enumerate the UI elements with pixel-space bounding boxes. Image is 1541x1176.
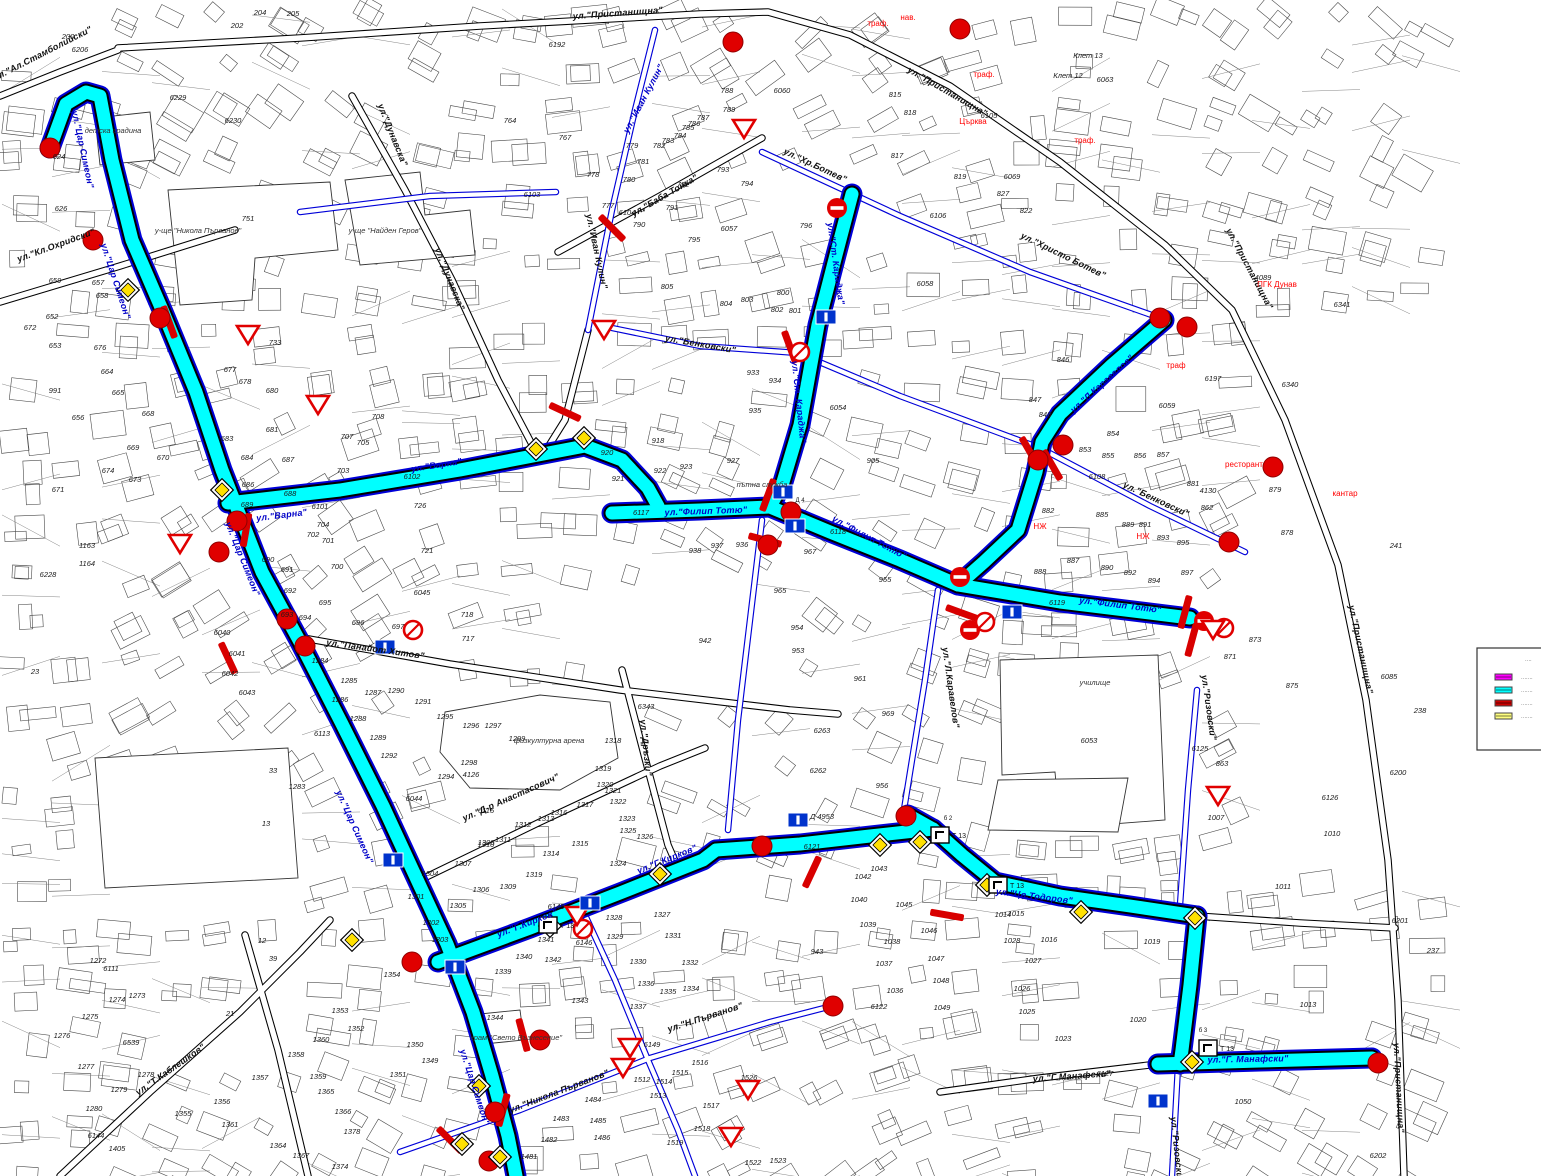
parcel-number-label: 6539 bbox=[123, 1038, 141, 1047]
parcel-number-label: 889 bbox=[1122, 520, 1135, 529]
parcel-number-label: 681 bbox=[266, 425, 279, 434]
red-annotation-label: траф. bbox=[1074, 136, 1095, 145]
parcel-number-label: 1311 bbox=[495, 835, 511, 844]
no-stopping-sign[interactable] bbox=[404, 621, 422, 639]
parcel-number-label: 1275 bbox=[82, 1012, 100, 1021]
parcel-number-label: 1010 bbox=[1324, 829, 1342, 838]
parcel-number-label: 1515 bbox=[672, 1068, 690, 1077]
parcel-number-label: 1319 bbox=[595, 764, 613, 773]
parcel-number-label: 718 bbox=[461, 610, 474, 619]
parcel-number-label: 1323 bbox=[619, 814, 637, 823]
parcel-number-label: 717 bbox=[462, 634, 475, 643]
parcel-number-label: 778 bbox=[587, 170, 600, 179]
note-label: б 2 bbox=[944, 816, 953, 822]
parcel-number-label: 853 bbox=[1079, 445, 1092, 454]
parcel-number-label: 965 bbox=[774, 586, 787, 595]
parcel-number-label: 1518 bbox=[694, 1124, 712, 1133]
parcel-number-label: 1337 bbox=[630, 1002, 648, 1011]
parcel-number-label: 671 bbox=[52, 485, 65, 494]
parcel-number-label: 1287 bbox=[365, 688, 383, 697]
parcel-number-label: 890 bbox=[1101, 563, 1114, 572]
parcel-number-label: 822 bbox=[1020, 206, 1033, 215]
parcel-number-label: 847 bbox=[1029, 395, 1042, 404]
parcel-number-label: 1049 bbox=[934, 1003, 952, 1012]
parcel-number-label: 6054 bbox=[830, 403, 847, 412]
parcel-number-label: 1288 bbox=[350, 714, 368, 723]
parcel-number-label: 784 bbox=[674, 131, 687, 140]
parcel-number-label: 956 bbox=[876, 781, 889, 790]
red-annotation-label: Църква bbox=[959, 117, 987, 126]
traffic-dot-marker[interactable] bbox=[1028, 450, 1048, 470]
parcel-number-label: 658 bbox=[96, 291, 109, 300]
parcel-number-label: 672 bbox=[24, 323, 37, 332]
parcel-number-label: 1310 bbox=[478, 840, 496, 849]
parcel-number-label: 678 bbox=[239, 377, 252, 386]
parcel-number-label: 6200 bbox=[1390, 768, 1408, 777]
traffic-dot-marker[interactable] bbox=[1177, 317, 1197, 337]
info-sign-blue[interactable] bbox=[816, 310, 836, 324]
parcel-number-label: 688 bbox=[284, 489, 297, 498]
parcel-number-label: 1523 bbox=[770, 1156, 788, 1165]
traffic-dot-marker[interactable] bbox=[950, 19, 970, 39]
red-annotation-label: траф bbox=[1166, 361, 1186, 370]
parcel-number-label: 624 bbox=[53, 152, 66, 161]
parcel-number-label: 1025 bbox=[1019, 1007, 1037, 1016]
parcel-number-label: 1302 bbox=[423, 918, 441, 927]
parcel-number-label: 652 bbox=[46, 312, 59, 321]
parcel-number-label: 922 bbox=[654, 466, 667, 475]
parcel-number-label: 1328 bbox=[606, 913, 624, 922]
parcel-number-label: 6060 bbox=[774, 86, 792, 95]
traffic-dot-marker[interactable] bbox=[1053, 435, 1073, 455]
parcel-number-label: 1015 bbox=[1008, 909, 1026, 918]
traffic-dot-marker[interactable] bbox=[723, 32, 743, 52]
parcel-number-label: 1327 bbox=[654, 910, 672, 919]
parcel-number-label: 1324 bbox=[610, 859, 627, 868]
parcel-number-label: 665 bbox=[112, 388, 125, 397]
parcel-number-label: 4130 bbox=[1200, 486, 1218, 495]
parcel-number-label: 6262 bbox=[810, 766, 828, 775]
parcel-number-label: 6149 bbox=[644, 1040, 662, 1049]
parcel-number-label: 687 bbox=[282, 455, 295, 464]
red-annotation-label: НЖ bbox=[1033, 522, 1047, 531]
parcel-number-label: 1277 bbox=[78, 1062, 96, 1071]
parcel-number-label: 1522 bbox=[745, 1158, 763, 1167]
parcel-number-label: 1364 bbox=[270, 1141, 287, 1150]
parcel-number-label: 6121 bbox=[804, 842, 821, 851]
parcel-number-label: 1334 bbox=[683, 984, 700, 993]
parcel-number-label: 815 bbox=[889, 90, 902, 99]
parcel-number-label: 6144 bbox=[88, 1131, 105, 1140]
parcel-number-label: 879 bbox=[1269, 485, 1282, 494]
parcel-number-label: 701 bbox=[322, 536, 335, 545]
parcel-number-label: 888 bbox=[1034, 567, 1047, 576]
parcel-number-label: 938 bbox=[689, 546, 702, 555]
parcel-number-label: 1361 bbox=[222, 1120, 239, 1129]
parcel-number-label: 969 bbox=[882, 709, 895, 718]
red-annotation-label: траф. bbox=[867, 19, 888, 28]
parcel-number-label: 1378 bbox=[344, 1127, 362, 1136]
parcel-number-label: 991 bbox=[49, 386, 62, 395]
parcel-number-label: 767 bbox=[559, 133, 572, 142]
parcel-number-label: 1326 bbox=[637, 832, 655, 841]
place-label: у-ще "Найден Геров" bbox=[348, 226, 422, 235]
parcel-number-label: 863 bbox=[1216, 759, 1229, 768]
parcel-number-label: 6040 bbox=[214, 628, 232, 637]
parcel-number-label: 855 bbox=[1102, 451, 1115, 460]
parcel-number-label: 894 bbox=[1148, 576, 1161, 585]
parcel-number-label: 796 bbox=[800, 221, 813, 230]
parcel-number-label: 6063 bbox=[1097, 75, 1115, 84]
parcel-number-label: 1482 bbox=[541, 1135, 559, 1144]
parcel-number-label: 1481 bbox=[521, 1152, 538, 1161]
parcel-number-label: 6053 bbox=[1081, 736, 1099, 745]
parcel-number-label: 1358 bbox=[288, 1050, 306, 1059]
sign-box-label: Т 13 bbox=[560, 923, 574, 930]
parcel-number-label: 846 bbox=[1057, 355, 1070, 364]
parcel-number-label: 1325 bbox=[620, 826, 638, 835]
legend-header: ···· bbox=[1525, 658, 1532, 664]
legend-label: ······· bbox=[1521, 676, 1533, 682]
parcel-number-label: 677 bbox=[224, 365, 237, 374]
traffic-dot-marker[interactable] bbox=[402, 952, 422, 972]
parcel-number-label: 1354 bbox=[384, 970, 401, 979]
city-map-svg[interactable]: Т 13Т 13Т 13Т 13200202204205620662306229… bbox=[0, 0, 1541, 1176]
parcel-number-label: 933 bbox=[747, 368, 760, 377]
parcel-number-label: 862 bbox=[1201, 503, 1214, 512]
parcel-number-label: 1343 bbox=[572, 996, 590, 1005]
parcel-number-label: 1011 bbox=[1275, 882, 1291, 891]
no-entry-sign[interactable] bbox=[827, 198, 847, 218]
parcel-number-label: 854 bbox=[1107, 429, 1120, 438]
parcel-number-label: 683 bbox=[221, 434, 234, 443]
parcel-number-label: 6069 bbox=[1004, 172, 1022, 181]
parcel-number-label: 669 bbox=[127, 443, 140, 452]
note-label: б 3 bbox=[1199, 1028, 1208, 1034]
place-label: училище bbox=[1079, 678, 1111, 687]
parcel-number-label: 21 bbox=[225, 1009, 234, 1018]
parcel-number-label: 819 bbox=[954, 172, 967, 181]
info-sign-blue[interactable] bbox=[580, 896, 600, 910]
parcel-number-label: 1276 bbox=[54, 1031, 72, 1040]
parcel-number-label: 1303 bbox=[432, 935, 450, 944]
parcel-number-label: 1285 bbox=[341, 676, 359, 685]
parcel-number-label: 6057 bbox=[721, 224, 739, 233]
parcel-number-label: 1516 bbox=[692, 1058, 710, 1067]
parcel-number-label: 787 bbox=[697, 113, 710, 122]
info-sign-blue[interactable] bbox=[785, 519, 805, 533]
parcel-number-label: 6126 bbox=[1322, 793, 1340, 802]
parcel-number-label: 695 bbox=[319, 598, 332, 607]
parcel-number-label: 1042 bbox=[855, 872, 873, 881]
parcel-number-label: 13 bbox=[262, 819, 271, 828]
parcel-number-label: 1486 bbox=[594, 1133, 612, 1142]
parcel-number-label: 943 bbox=[811, 947, 824, 956]
traffic-dot-marker[interactable] bbox=[1150, 308, 1170, 328]
parcel-number-label: 1294 bbox=[438, 772, 455, 781]
parcel-number-label: 700 bbox=[331, 562, 344, 571]
parcel-number-label: 1297 bbox=[485, 721, 503, 730]
parcel-number-label: 6340 bbox=[1282, 380, 1300, 389]
parcel-number-label: 923 bbox=[680, 462, 693, 471]
parcel-number-label: 789 bbox=[723, 105, 736, 114]
parcel-number-label: 1356 bbox=[214, 1097, 232, 1106]
parcel-number-label: 6058 bbox=[917, 279, 935, 288]
parcel-number-label: 1519 bbox=[667, 1138, 685, 1147]
parcel-number-label: 6085 bbox=[1381, 672, 1399, 681]
traffic-dot-marker[interactable] bbox=[209, 542, 229, 562]
parcel-number-label: 33 bbox=[269, 766, 278, 775]
parcel-number-label: 656 bbox=[72, 413, 85, 422]
parcel-number-label: 1309 bbox=[500, 882, 518, 891]
parcel-number-label: 751 bbox=[242, 214, 255, 223]
info-sign-blue[interactable] bbox=[445, 960, 465, 974]
parcel-number-label: 803 bbox=[741, 295, 754, 304]
parcel-number-label: 696 bbox=[352, 618, 365, 627]
parcel-number-label: 6206 bbox=[72, 45, 90, 54]
block-outline bbox=[988, 778, 1128, 832]
parcel-number-label: 1289 bbox=[370, 733, 388, 742]
parcel-number-label: 659 bbox=[49, 276, 62, 285]
parcel-number-label: 871 bbox=[1224, 652, 1237, 661]
parcel-number-label: 707 bbox=[341, 432, 354, 441]
parcel-number-label: 934 bbox=[769, 376, 782, 385]
parcel-number-label: 1312 bbox=[515, 820, 533, 829]
parcel-number-label: 781 bbox=[637, 157, 650, 166]
city-cadastre-map[interactable]: Т 13Т 13Т 13Т 13200202204205620662306229… bbox=[0, 0, 1541, 1176]
parcel-number-label: 1350 bbox=[407, 1040, 425, 1049]
parcel-number-label: 721 bbox=[421, 546, 434, 555]
parcel-number-label: 1342 bbox=[545, 955, 563, 964]
parcel-number-label: 1292 bbox=[381, 751, 399, 760]
parcel-number-label: 6041 bbox=[229, 649, 246, 658]
info-sign-blue[interactable] bbox=[383, 853, 403, 867]
parcel-number-label: 1367 bbox=[293, 1151, 311, 1160]
parcel-number-label: 1526 bbox=[741, 1073, 759, 1082]
parcel-number-label: 653 bbox=[49, 341, 62, 350]
traffic-dot-marker[interactable] bbox=[1368, 1053, 1388, 1073]
parcel-number-label: 1484 bbox=[585, 1095, 602, 1104]
parcel-number-label: 878 bbox=[1281, 528, 1294, 537]
parcel-number-label: 1295 bbox=[437, 712, 455, 721]
parcel-number-label: 626 bbox=[55, 204, 68, 213]
parcel-number-label: 1514 bbox=[656, 1077, 673, 1086]
legend-label: ······· bbox=[1521, 715, 1533, 721]
parcel-number-label: 6059 bbox=[1159, 401, 1177, 410]
parcel-number-label: 1019 bbox=[1144, 937, 1162, 946]
parcel-number-label: 1352 bbox=[348, 1024, 366, 1033]
parcel-number-label: 1036 bbox=[887, 986, 905, 995]
red-annotation-label: НЖ bbox=[1136, 532, 1150, 541]
parcel-number-label: 1028 bbox=[1004, 936, 1022, 945]
traffic-dot-marker[interactable] bbox=[150, 308, 170, 328]
parcel-number-label: 1366 bbox=[335, 1107, 353, 1116]
place-label: у-ще "Никола Първанов" bbox=[154, 226, 242, 235]
traffic-dot-marker[interactable] bbox=[1219, 532, 1239, 552]
parcel-number-label: 779 bbox=[626, 141, 639, 150]
parcel-number-label: 1284 bbox=[312, 656, 329, 665]
parcel-number-label: 895 bbox=[1177, 538, 1190, 547]
place-label: физкултурна арена bbox=[514, 736, 585, 745]
parcel-number-label: 6042 bbox=[222, 669, 240, 678]
parcel-number-label: 1339 bbox=[495, 967, 513, 976]
parcel-number-label: 800 bbox=[777, 288, 790, 297]
parcel-number-label: 1272 bbox=[90, 956, 108, 965]
parcel-number-label: 697 bbox=[392, 622, 405, 631]
parcel-number-label: 6117 bbox=[633, 508, 650, 517]
parcel-number-label: 801 bbox=[789, 306, 802, 315]
parcel-number-label: 1517 bbox=[703, 1101, 721, 1110]
no-stopping-sign[interactable] bbox=[976, 613, 994, 631]
parcel-number-label: 1046 bbox=[921, 926, 939, 935]
parcel-number-label: 1279 bbox=[111, 1085, 129, 1094]
parcel-number-label: 818 bbox=[904, 108, 917, 117]
parcel-number-label: 39 bbox=[269, 954, 278, 963]
red-annotation-label: кантар bbox=[1332, 489, 1358, 498]
parcel-number-label: 6146 bbox=[576, 938, 594, 947]
block-outline bbox=[95, 748, 298, 888]
parcel-number-label: 848 bbox=[1039, 410, 1052, 419]
parcel-number-label: 1045 bbox=[896, 900, 914, 909]
parcel-number-label: 1512 bbox=[634, 1075, 652, 1084]
parcel-number-label: 897 bbox=[1181, 568, 1194, 577]
parcel-number-label: 788 bbox=[721, 86, 734, 95]
sign-box-label: Т 13 bbox=[1220, 1046, 1234, 1053]
traffic-dot-marker[interactable] bbox=[295, 636, 315, 656]
parcel-number-label: 1039 bbox=[860, 920, 878, 929]
parcel-number-label: 887 bbox=[1067, 556, 1080, 565]
parcel-number-label: 1038 bbox=[884, 937, 902, 946]
parcel-number-label: 6201 bbox=[1392, 916, 1409, 925]
parcel-number-label: 670 bbox=[157, 453, 170, 462]
parcel-number-label: 1296 bbox=[463, 721, 481, 730]
parcel-number-label: 1353 bbox=[332, 1006, 350, 1015]
parcel-number-label: 6197 bbox=[1205, 374, 1223, 383]
parcel-number-label: 1322 bbox=[610, 797, 628, 806]
parcel-number-label: 6101 bbox=[312, 502, 329, 511]
parcel-number-label: 668 bbox=[142, 409, 155, 418]
parcel-number-label: 693 bbox=[281, 610, 294, 619]
parcel-number-label: 684 bbox=[241, 453, 254, 462]
parcel-number-label: 1020 bbox=[1130, 1015, 1148, 1024]
parcel-number-label: 1321 bbox=[605, 786, 622, 795]
parcel-number-label: 6111 bbox=[103, 964, 119, 973]
parcel-number-label: 1164 bbox=[79, 559, 95, 568]
parcel-number-label: 6192 bbox=[549, 40, 567, 49]
parcel-number-label: 1314 bbox=[543, 849, 560, 858]
parcel-number-label: 955 bbox=[879, 575, 892, 584]
parcel-number-label: 1305 bbox=[450, 901, 468, 910]
sign-box-label: Т 13 bbox=[952, 833, 966, 840]
parcel-number-label: 657 bbox=[92, 278, 105, 287]
parcel-number-label: 953 bbox=[792, 646, 805, 655]
parcel-number-label: 1340 bbox=[516, 952, 534, 961]
parcel-number-label: 780 bbox=[623, 175, 636, 184]
note-label: Д 4 bbox=[795, 498, 805, 504]
parcel-number-label: 1048 bbox=[933, 976, 951, 985]
place-label: пътна служба bbox=[737, 480, 788, 489]
red-annotation-label: нав. bbox=[900, 13, 915, 22]
parcel-number-label: 1513 bbox=[650, 1091, 668, 1100]
parcel-number-label: Клет 12 bbox=[1053, 71, 1083, 80]
red-annotation-label: ПГК Дунав bbox=[1257, 280, 1297, 289]
parcel-number-label: 827 bbox=[997, 189, 1010, 198]
parcel-number-label: 705 bbox=[357, 438, 370, 447]
parcel-number-label: 1037 bbox=[876, 959, 894, 968]
parcel-number-label: 12 bbox=[258, 936, 267, 945]
parcel-number-label: 686 bbox=[242, 480, 255, 489]
parcel-number-label: 942 bbox=[699, 636, 712, 645]
parcel-number-label: 6119 bbox=[1049, 598, 1066, 607]
info-sign-blue[interactable] bbox=[1002, 605, 1022, 619]
parcel-number-label: 680 bbox=[266, 386, 279, 395]
parcel-number-label: 920 bbox=[601, 448, 614, 457]
parcel-number-label: 1298 bbox=[461, 758, 479, 767]
parcel-number-label: 1163 bbox=[79, 541, 96, 550]
parcel-number-label: 205 bbox=[286, 9, 300, 18]
traffic-dot-marker[interactable] bbox=[758, 535, 778, 555]
parcel-number-label: 1360 bbox=[313, 1035, 331, 1044]
parcel-number-label: 1007 bbox=[1208, 813, 1226, 822]
parcel-number-label: 935 bbox=[749, 406, 762, 415]
parcel-number-label: 1023 bbox=[1055, 1034, 1073, 1043]
parcel-number-label: 1027 bbox=[1025, 956, 1043, 965]
traffic-dot-marker[interactable] bbox=[1263, 457, 1283, 477]
parcel-number-label: 241 bbox=[1389, 541, 1403, 550]
parcel-number-label: 1485 bbox=[590, 1116, 608, 1125]
parcel-number-label: 1365 bbox=[318, 1087, 336, 1096]
parcel-number-label: 873 bbox=[1249, 635, 1262, 644]
parcel-number-label: 1013 bbox=[1300, 1000, 1318, 1009]
parcel-number-label: 927 bbox=[727, 456, 740, 465]
parcel-number-label: 1050 bbox=[1235, 1097, 1253, 1106]
traffic-dot-marker[interactable] bbox=[752, 836, 772, 856]
parcel-number-label: Д 4953 bbox=[809, 812, 835, 821]
parcel-number-label: 1483 bbox=[553, 1114, 571, 1123]
no-entry-sign[interactable] bbox=[950, 567, 970, 587]
parcel-number-label: 664 bbox=[101, 367, 114, 376]
parcel-number-label: 1273 bbox=[129, 991, 147, 1000]
parcel-number-label: 4126 bbox=[463, 770, 481, 779]
parcel-number-label: 1344 bbox=[487, 1013, 504, 1022]
parcel-number-label: 1341 bbox=[538, 935, 555, 944]
parcel-number-label: 1359 bbox=[310, 1072, 328, 1081]
parcel-number-label: 708 bbox=[372, 412, 385, 421]
parcel-number-label: 237 bbox=[1426, 946, 1440, 955]
info-sign-blue[interactable] bbox=[1148, 1094, 1168, 1108]
traffic-dot-marker[interactable] bbox=[896, 806, 916, 826]
parcel-number-label: 794 bbox=[741, 179, 754, 188]
red-annotation-label: траф. bbox=[973, 70, 994, 79]
parcel-number-label: 804 bbox=[720, 299, 733, 308]
info-sign-blue[interactable] bbox=[788, 813, 808, 827]
parcel-number-label: 23 bbox=[30, 667, 40, 676]
parcel-number-label: 204 bbox=[253, 8, 267, 17]
parcel-number-label: 1307 bbox=[455, 859, 473, 868]
traffic-dot-marker[interactable] bbox=[823, 996, 843, 1016]
parcel-number-label: 936 bbox=[736, 540, 749, 549]
parcel-number-label: 1286 bbox=[332, 695, 350, 704]
parcel-number-label: 1016 bbox=[1041, 935, 1059, 944]
parcel-number-label: 892 bbox=[1124, 568, 1137, 577]
parcel-number-label: 1290 bbox=[388, 686, 406, 695]
no-stopping-sign[interactable] bbox=[791, 343, 809, 361]
parcel-number-label: 1405 bbox=[109, 1144, 127, 1153]
parcel-number-label: 704 bbox=[317, 520, 330, 529]
parcel-number-label: 6122 bbox=[871, 1002, 889, 1011]
parcel-number-label: 790 bbox=[633, 220, 646, 229]
parcel-number-label: 6103 bbox=[524, 190, 542, 199]
